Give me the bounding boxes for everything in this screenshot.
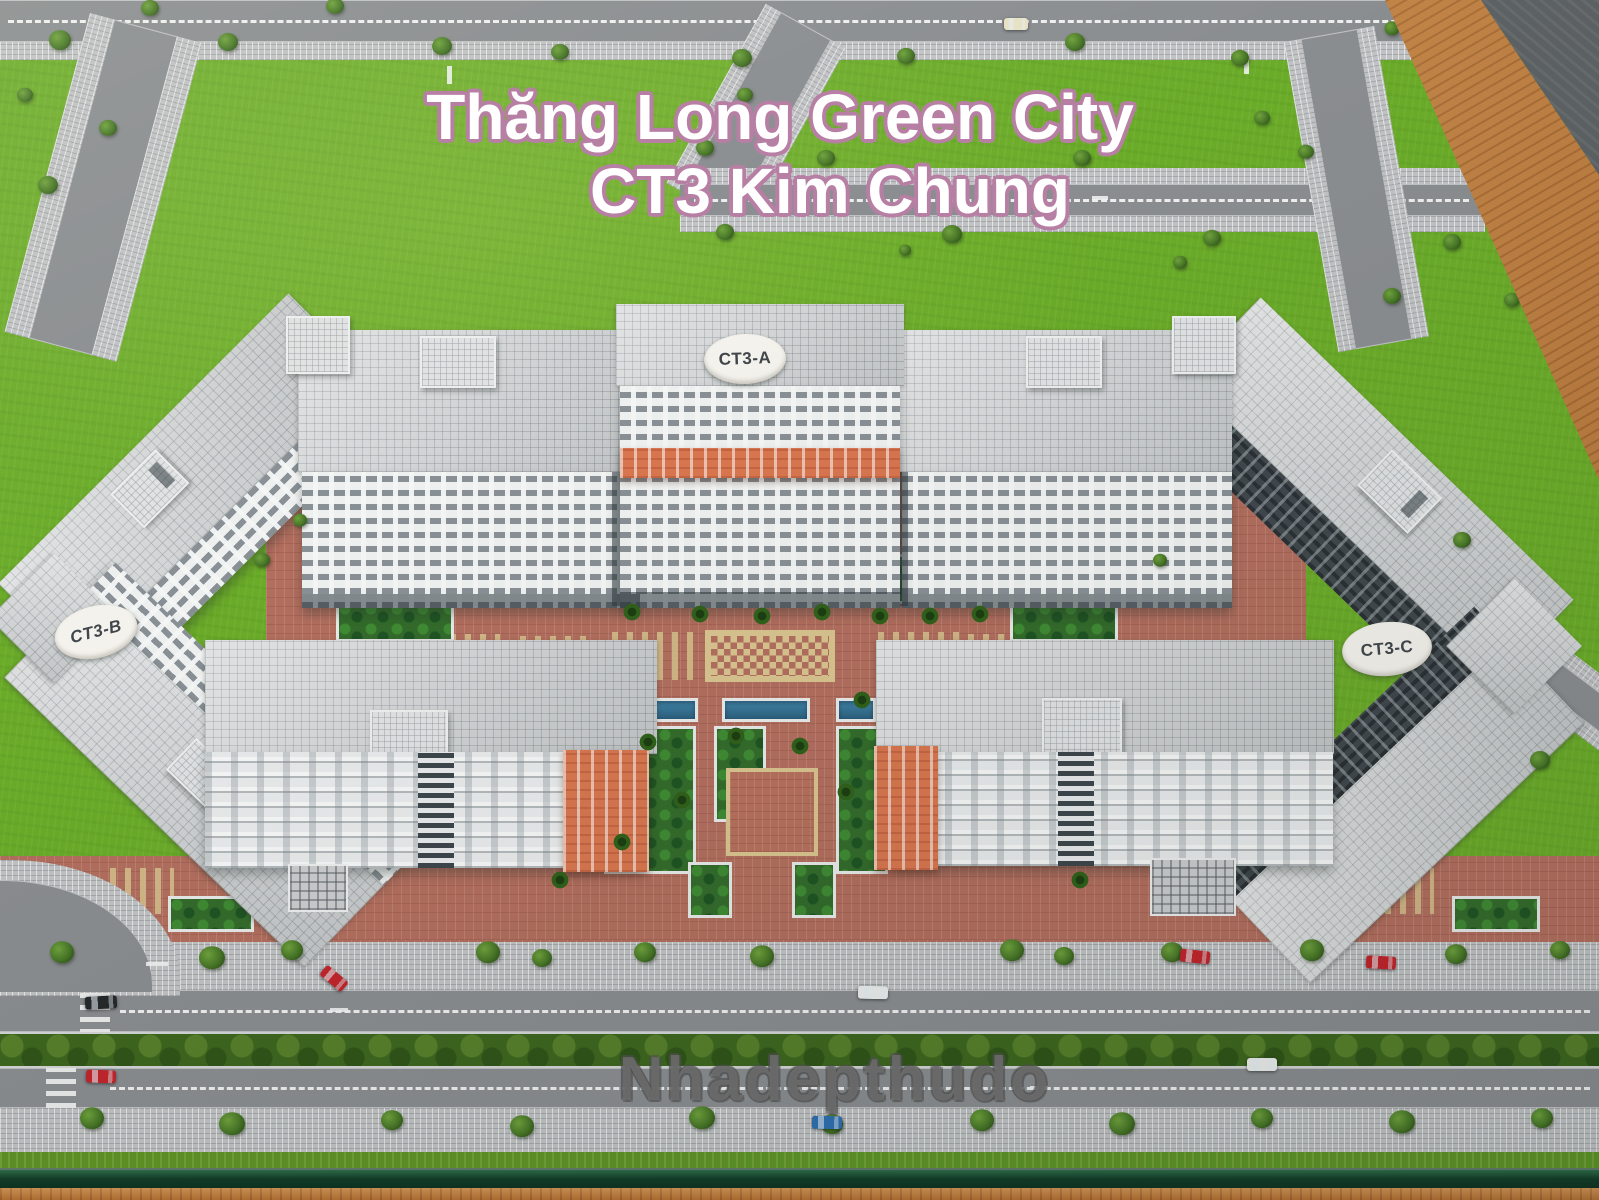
title-overlay: Thăng Long Green City CT3 Kim Chung: [390, 80, 1170, 228]
vehicle-2: [86, 1069, 116, 1083]
title-line-1: Thăng Long Green City: [390, 80, 1170, 154]
vehicle-5: [1366, 955, 1397, 970]
vehicle-7: [812, 1116, 842, 1130]
vehicle-4: [1179, 948, 1210, 964]
scale-model-photo: CT3-A CT3-B CT3-C Thăng Long Green City …: [0, 0, 1599, 1200]
title-line-2: CT3 Kim Chung: [440, 154, 1220, 228]
vehicle-3: [858, 986, 888, 1000]
vehicle-0: [85, 995, 118, 1010]
watermark: Nhadepthudo: [600, 1044, 1070, 1115]
vehicle-1: [319, 965, 349, 993]
vehicle-8: [1004, 18, 1028, 30]
vehicle-6: [1247, 1058, 1277, 1071]
